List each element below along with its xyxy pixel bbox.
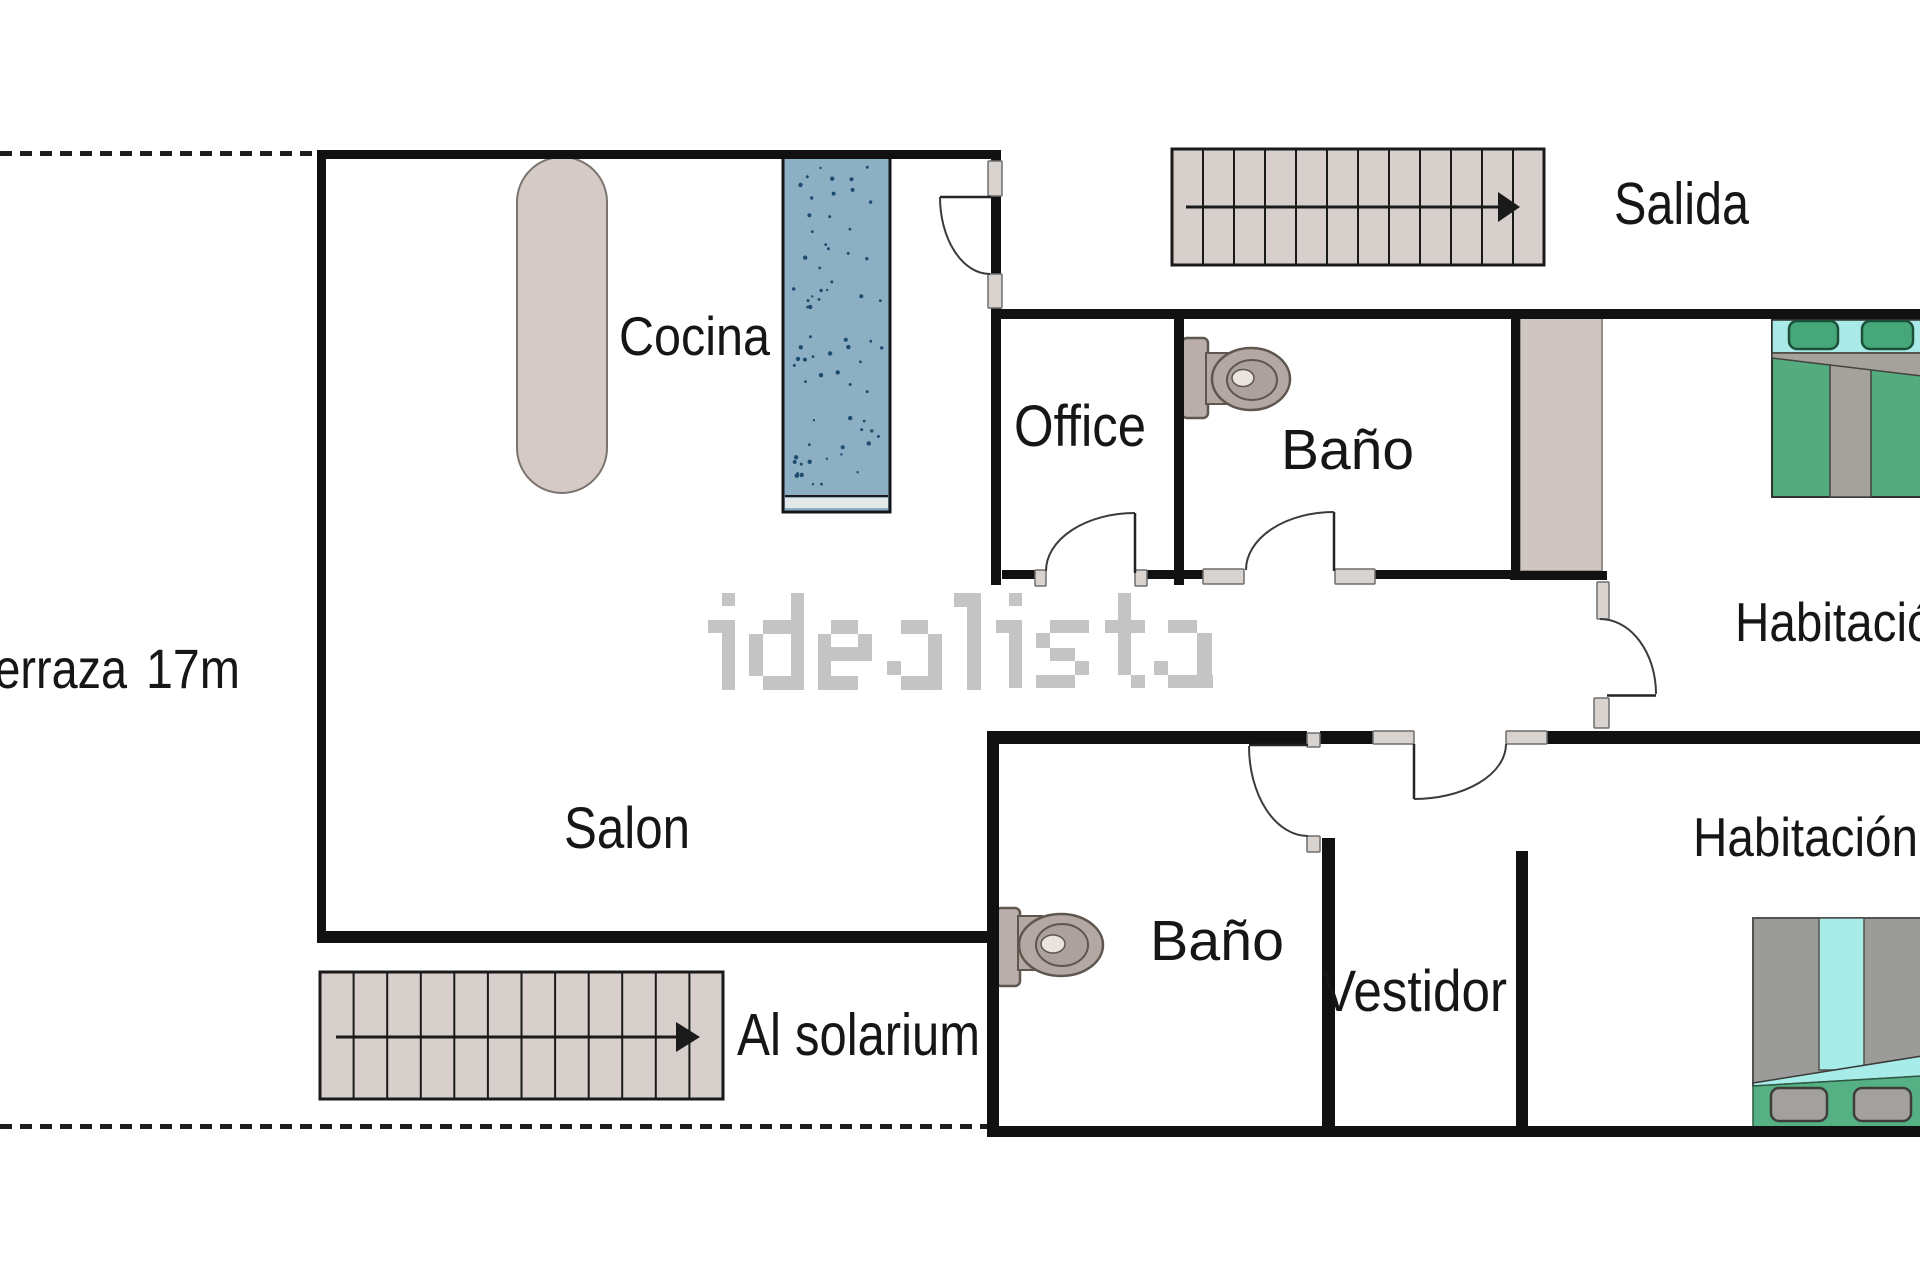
svg-text:Salon: Salon: [564, 796, 690, 861]
svg-text:Vestidor: Vestidor: [1322, 959, 1507, 1024]
svg-text:17m: 17m: [146, 637, 240, 700]
svg-text:Office: Office: [1014, 394, 1146, 459]
svg-text:Al: Al: [737, 1002, 781, 1068]
svg-text:solarium: solarium: [795, 1002, 980, 1068]
svg-text:Terraza: Terraza: [0, 637, 128, 700]
svg-text:Habitación: Habitación: [1735, 591, 1920, 653]
svg-text:Baño: Baño: [1150, 909, 1284, 973]
svg-text:Habitación: Habitación: [1693, 806, 1918, 868]
svg-text:Salida: Salida: [1614, 171, 1749, 237]
svg-text:Cocina: Cocina: [619, 305, 770, 367]
svg-text:Baño: Baño: [1281, 418, 1414, 482]
